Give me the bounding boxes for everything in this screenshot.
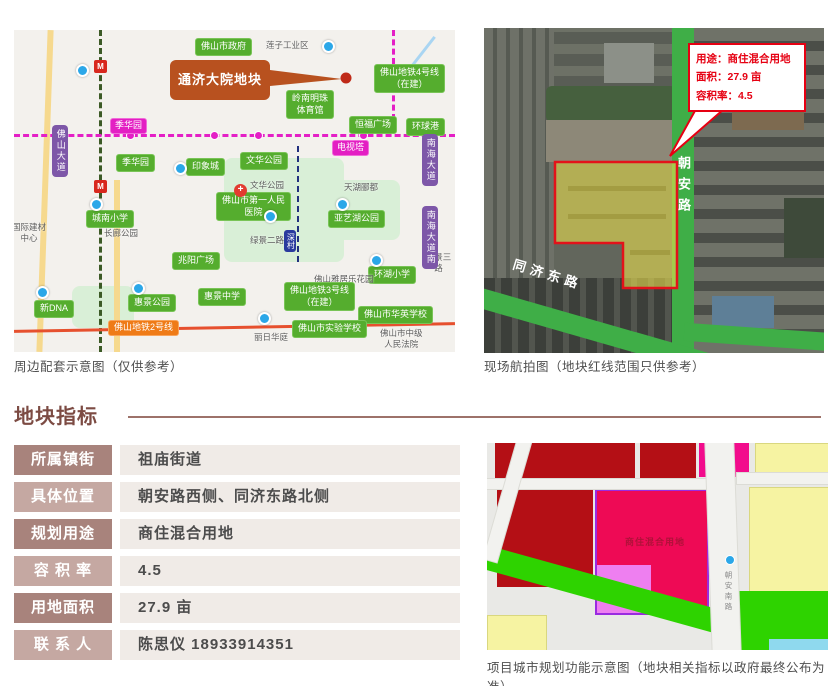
zone-yellow — [755, 443, 828, 475]
map-poi-label: 佛山市实验学校 — [292, 320, 367, 338]
annotation-usage: 用途：商住混合用地 — [696, 50, 798, 68]
map-poi-label: 文华公园 — [240, 152, 288, 170]
map-poi-label: 绿景二路 — [250, 235, 284, 246]
station-dot — [254, 131, 263, 140]
annotation-far: 容积率：4.5 — [696, 87, 798, 105]
map-poi-label: M — [94, 180, 107, 193]
map-poi-label — [258, 312, 271, 325]
aerial-caption: 现场航拍图（地块红线范围只供参考） — [484, 356, 705, 375]
map-poi-label: 惠景公园 — [128, 294, 176, 312]
map-poi-label: 佛山地铁2号线 — [108, 320, 179, 336]
map-poi-label: 佛山地铁3号线 （在建） — [284, 282, 355, 311]
road-label: 朝安南路 — [723, 571, 734, 613]
annotation-area: 面积：27.9 亩 — [696, 68, 798, 86]
metro-line-dashed-magenta — [14, 134, 455, 137]
map-poi-label: 文华公园 — [250, 180, 284, 191]
map-poi-label: 惠景中学 — [198, 288, 246, 306]
map-poi-label — [90, 198, 103, 211]
table-row: 所属镇街 祖庙街道 — [14, 445, 460, 475]
row-value: 27.9 亩 — [120, 593, 460, 623]
surroundings-map: 佛山市政府莲子工业区佛山地铁4号线 （在建）岭南明珠 体育馆恒福广场环球港季华园… — [14, 30, 455, 352]
map-poi-label: 岭南明珠 体育馆 — [286, 90, 334, 119]
row-label: 规划用途 — [14, 519, 112, 549]
road-horizontal — [737, 473, 828, 484]
map-poi-label — [322, 40, 335, 53]
map-poi-label: M — [94, 60, 107, 73]
map-poi-label — [76, 64, 89, 77]
map-poi-label: 丽日华庭 — [254, 332, 288, 343]
row-label: 所属镇街 — [14, 445, 112, 475]
row-label: 联 系 人 — [14, 630, 112, 660]
map-poi-label: + — [234, 184, 247, 197]
map-poi-label — [132, 282, 145, 295]
map-poi-label: 城南小学 — [86, 210, 134, 228]
land-parcel-flyer: 佛山市政府莲子工业区佛山地铁4号线 （在建）岭南明珠 体育馆恒福广场环球港季华园… — [0, 0, 837, 686]
table-row: 用地面积 27.9 亩 — [14, 593, 460, 623]
row-value: 祖庙街道 — [120, 445, 460, 475]
map-poi-label: 兆阳广场 — [172, 252, 220, 270]
map-poi-label: 恒福广场 — [349, 116, 397, 134]
station-dot — [210, 131, 219, 140]
metro-line-dashed-navy — [297, 146, 299, 262]
map-poi-label: 天湖郦都 — [344, 182, 378, 193]
row-value: 商住混合用地 — [120, 519, 460, 549]
parcel-info-table: 所属镇街 祖庙街道 具体位置 朝安路西侧、同济东路北侧 规划用途 商住混合用地 … — [14, 445, 460, 667]
parcel-zone-label: 商住混合用地 — [605, 535, 705, 548]
row-label: 容 积 率 — [14, 556, 112, 586]
map-poi-label: 季华园 — [116, 154, 155, 172]
section-title: 地块指标 — [14, 400, 98, 429]
section-divider — [128, 416, 821, 418]
map-poi-label — [174, 162, 187, 175]
zone-yellow — [749, 487, 828, 595]
map-poi-label — [264, 210, 277, 223]
zone-yellow — [487, 615, 547, 650]
row-label: 具体位置 — [14, 482, 112, 512]
map-poi-label: 深村 — [284, 230, 296, 252]
map-poi-label: 佛山市华英学校 — [358, 306, 433, 324]
map-poi-label: 佛山市中级 人民法院 — [380, 328, 423, 350]
row-value: 朝安路西侧、同济东路北侧 — [120, 482, 460, 512]
planning-caption: 项目城市规划功能示意图（地块相关指标以政府最终公布为准） — [487, 657, 837, 686]
table-row: 规划用途 商住混合用地 — [14, 519, 460, 549]
map-poi-label: 新DNA — [34, 300, 74, 318]
map-poi-label: 佛山地铁4号线 （在建） — [374, 64, 445, 93]
zone-dark-red — [640, 443, 696, 479]
table-row: 联 系 人 陈思仪 18933914351 — [14, 630, 460, 660]
table-row: 容 积 率 4.5 — [14, 556, 460, 586]
planning-map: 商住混合用地 朝安南路 — [487, 443, 828, 650]
row-label: 用地面积 — [14, 593, 112, 623]
row-value: 陈思仪 18933914351 — [120, 630, 460, 660]
water-strip — [769, 639, 828, 650]
row-value: 4.5 — [120, 556, 460, 586]
parcel-callout: 通济大院地块 — [170, 60, 270, 100]
poi-marker-icon — [725, 555, 735, 565]
map-poi-label: 佛山市政府 — [195, 38, 252, 56]
map-poi-label — [370, 254, 383, 267]
map-poi-label: 南海大道南 — [422, 206, 438, 269]
map-caption: 周边配套示意图（仅供参考） — [14, 356, 183, 375]
map-poi-label — [336, 198, 349, 211]
map-poi-label: 印象城 — [186, 158, 225, 176]
map-poi-label: 佛山市第一人民 医院 — [216, 192, 291, 221]
map-poi-label: 莲子工业区 — [266, 40, 309, 51]
map-poi-label: 环湖小学 — [368, 266, 416, 284]
map-poi-label: 佛山大道 — [52, 125, 68, 177]
map-poi-label: 季华园 — [110, 118, 147, 134]
map-poi-label: 电视塔 — [332, 140, 369, 156]
map-poi-label — [36, 286, 49, 299]
map-poi-label: 南海大道 — [422, 134, 438, 186]
map-poi-label: 国际建材 中心 — [14, 222, 46, 244]
map-poi-label: 亚艺湖公园 — [328, 210, 385, 228]
table-row: 具体位置 朝安路西侧、同济东路北侧 — [14, 482, 460, 512]
parcel-annotation: 用途：商住混合用地 面积：27.9 亩 容积率：4.5 — [688, 43, 806, 112]
aerial-photo: 朝安路 同济东路 用途：商住混合用地 面积：27.9 亩 容积率：4.5 — [484, 28, 824, 353]
map-poi-label: 长廊公园 — [104, 228, 138, 239]
